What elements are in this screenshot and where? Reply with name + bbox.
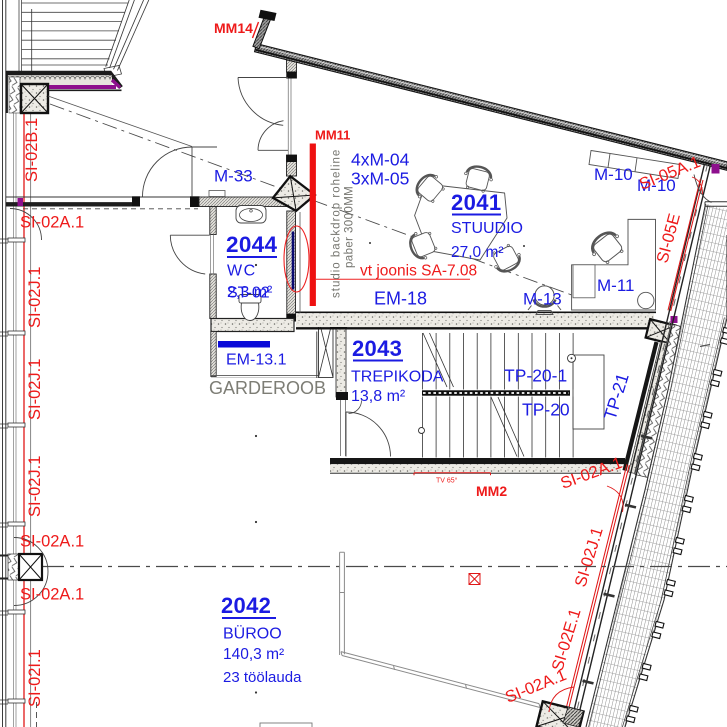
- svg-text:BÜROO: BÜROO: [223, 625, 282, 643]
- svg-text:EM-13.1: EM-13.1: [226, 352, 287, 369]
- svg-text:13,8 m²: 13,8 m²: [351, 388, 406, 405]
- svg-text:MM14: MM14: [214, 20, 253, 36]
- svg-text:MM11: MM11: [315, 128, 350, 143]
- svg-text:23 töölauda: 23 töölauda: [223, 669, 302, 686]
- svg-text:SI-02J.1: SI-02J.1: [26, 456, 44, 517]
- svg-text:M-11: M-11: [597, 276, 634, 295]
- svg-text:2044: 2044: [226, 232, 277, 257]
- svg-text:M-33: M-33: [214, 167, 253, 186]
- svg-text:27,0 m²: 27,0 m²: [451, 244, 504, 261]
- svg-text:SI-02J.1: SI-02J.1: [26, 359, 44, 420]
- svg-text:TV 65°: TV 65°: [436, 477, 458, 485]
- svg-text:SI-02I.1: SI-02I.1: [26, 649, 44, 707]
- svg-text:TP-20: TP-20: [522, 400, 570, 420]
- svg-text:SI-02B.1: SI-02B.1: [23, 118, 41, 182]
- svg-text:STUUDIO: STUUDIO: [451, 220, 523, 237]
- svg-text:2041: 2041: [451, 190, 502, 215]
- svg-text:M-13: M-13: [523, 290, 562, 309]
- svg-text:GARDEROOB: GARDEROOB: [209, 378, 326, 398]
- svg-text:2043: 2043: [352, 336, 402, 361]
- svg-text:MM2: MM2: [476, 483, 507, 499]
- svg-text:vt joonis SA-7.08: vt joonis SA-7.08: [360, 263, 477, 280]
- svg-text:SI-02A.1: SI-02A.1: [20, 586, 84, 604]
- svg-text:paber 3000MM: paber 3000MM: [344, 186, 356, 268]
- svg-text:3xM-05: 3xM-05: [351, 169, 409, 189]
- svg-text:140,3 m²: 140,3 m²: [223, 646, 284, 663]
- svg-text:studio backdrop roheline: studio backdrop roheline: [331, 149, 343, 298]
- svg-text:SI-02A.1: SI-02A.1: [20, 214, 84, 232]
- svg-text:SI-02J.1: SI-02J.1: [26, 267, 44, 328]
- svg-text:2042: 2042: [221, 593, 271, 618]
- svg-text:ST-02: ST-02: [227, 285, 270, 302]
- svg-text:TREPIKODA: TREPIKODA: [351, 369, 444, 386]
- svg-text:4xM-04: 4xM-04: [351, 150, 410, 170]
- svg-text:WC: WC: [227, 263, 257, 280]
- svg-text:SI-02A.1: SI-02A.1: [20, 533, 84, 551]
- svg-text:M-10: M-10: [594, 165, 633, 184]
- svg-text:TP-20-1: TP-20-1: [504, 366, 567, 386]
- svg-text:EM-18: EM-18: [374, 289, 427, 309]
